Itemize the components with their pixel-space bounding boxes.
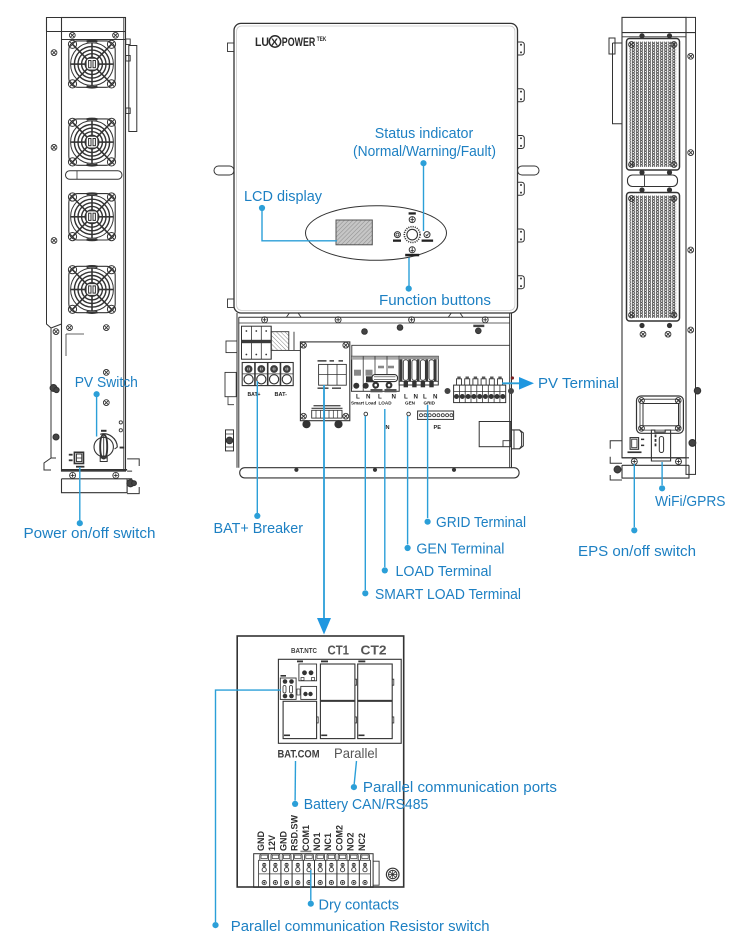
svg-text:BAT+ Breaker: BAT+ Breaker [214, 521, 304, 537]
svg-text:COM1: COM1 [301, 825, 311, 851]
svg-text:WiFi/GPRS: WiFi/GPRS [655, 494, 726, 510]
svg-text:GND: GND [256, 831, 266, 852]
svg-text:BAT.COM: BAT.COM [278, 749, 320, 761]
svg-text:NO1: NO1 [312, 832, 322, 851]
svg-text:CT2: CT2 [361, 643, 387, 658]
svg-text:SMART LOAD Terminal: SMART LOAD Terminal [375, 587, 521, 603]
svg-text:GEN Terminal: GEN Terminal [416, 542, 504, 558]
svg-text:Parallel: Parallel [334, 745, 378, 761]
svg-text:LOAD Terminal: LOAD Terminal [396, 564, 492, 580]
svg-text:NO2: NO2 [346, 832, 356, 851]
svg-text:LU: LU [255, 35, 269, 49]
svg-text:TEK: TEK [317, 36, 327, 43]
svg-text:LOAD: LOAD [379, 400, 393, 405]
svg-text:N: N [392, 394, 397, 401]
svg-text:BAT-: BAT- [275, 392, 288, 398]
svg-text:NC1: NC1 [323, 833, 333, 851]
svg-text:EPS on/off switch: EPS on/off switch [578, 544, 696, 560]
svg-text:GRID Terminal: GRID Terminal [436, 515, 526, 531]
svg-text:POWER: POWER [282, 35, 316, 49]
svg-text:BAT+: BAT+ [248, 392, 262, 398]
svg-text:PV Switch: PV Switch [75, 375, 138, 391]
svg-text:PV Terminal: PV Terminal [538, 376, 619, 392]
svg-text:PE: PE [434, 425, 442, 431]
svg-text:BAT.NTC: BAT.NTC [291, 646, 317, 655]
svg-text:Function buttons: Function buttons [379, 293, 491, 309]
svg-text:Smart Load: Smart Load [351, 400, 376, 405]
svg-text:X: X [271, 37, 278, 49]
svg-text:GRID: GRID [424, 400, 436, 405]
svg-text:RSD.SW: RSD.SW [290, 814, 300, 851]
svg-text:Status indicator: Status indicator [375, 126, 474, 142]
svg-text:Battery CAN/RS485: Battery CAN/RS485 [304, 797, 429, 813]
svg-text:CT1: CT1 [328, 643, 350, 658]
svg-text:(Normal/Warning/Fault): (Normal/Warning/Fault) [353, 144, 496, 160]
svg-text:NC2: NC2 [357, 833, 367, 851]
svg-text:Parallel communication Resisto: Parallel communication Resistor switch [231, 919, 490, 935]
svg-text:COM2: COM2 [334, 825, 344, 851]
svg-text:Power on/off switch: Power on/off switch [24, 526, 156, 542]
svg-text:GND: GND [278, 831, 288, 852]
svg-text:N: N [386, 425, 390, 431]
svg-text:Parallel communication ports: Parallel communication ports [363, 780, 557, 796]
svg-text:LCD display: LCD display [244, 189, 323, 205]
svg-text:Dry contacts: Dry contacts [319, 898, 400, 914]
svg-text:GEN: GEN [405, 400, 416, 405]
svg-text:12V: 12V [267, 835, 277, 851]
